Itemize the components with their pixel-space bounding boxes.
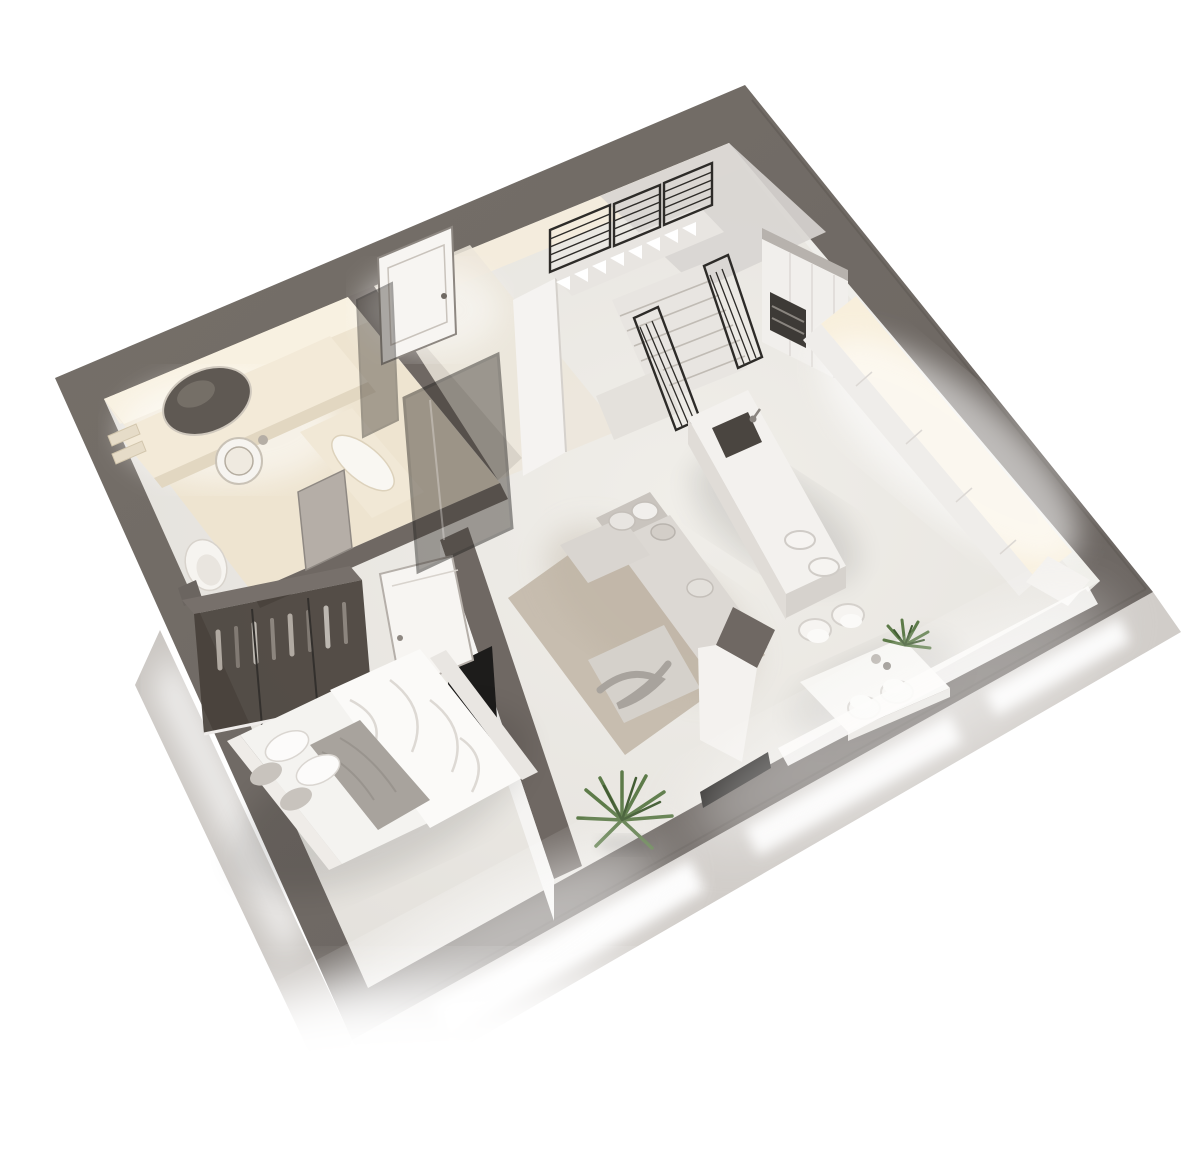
sofa-pillow-1: [609, 512, 635, 530]
sofa-pillow-2: [632, 502, 658, 520]
sofa-pillow-3: [651, 524, 675, 540]
decor-bowl-1: [871, 654, 881, 664]
sink-faucet: [258, 435, 268, 445]
glass-pane-small: [357, 283, 398, 437]
entry-door-handle: [441, 293, 447, 299]
sofa-pillow-4: [687, 579, 713, 597]
bar-stool-2: [809, 558, 839, 576]
bar-stool-1: [785, 531, 815, 549]
bedroom-door-handle: [397, 635, 403, 641]
apartment-floorplan-3d-render: [0, 0, 1200, 1166]
sink-basin: [225, 447, 253, 475]
bottom-fade-rect: [0, 1100, 1200, 1166]
